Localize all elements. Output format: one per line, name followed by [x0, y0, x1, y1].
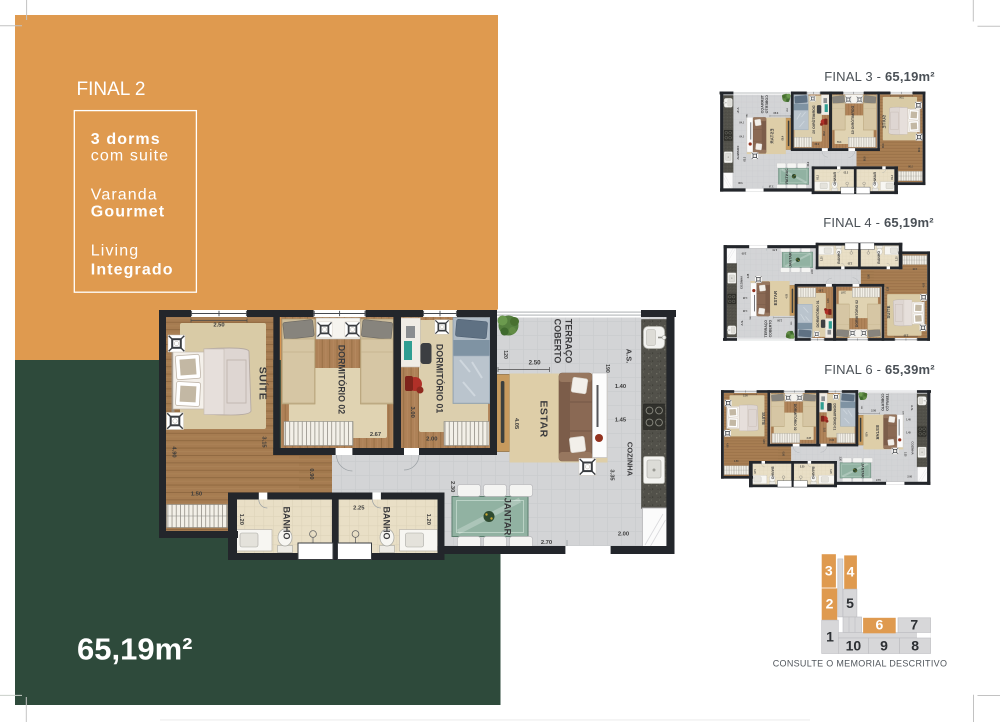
svg-text:Varanda: Varanda	[91, 187, 158, 204]
svg-text:9: 9	[880, 638, 888, 654]
svg-text:4: 4	[847, 564, 855, 580]
svg-text:3.15: 3.15	[261, 436, 267, 448]
svg-text:3 dorms: 3 dorms	[91, 131, 161, 148]
svg-text:3.35: 3.35	[609, 469, 615, 481]
svg-text:120: 120	[502, 350, 508, 359]
svg-text:3.00: 3.00	[409, 407, 415, 418]
svg-text:JANTAR: JANTAR	[502, 498, 513, 536]
svg-text:190: 190	[604, 364, 610, 373]
svg-text:1.20: 1.20	[425, 514, 431, 525]
svg-text:Living: Living	[91, 243, 139, 260]
svg-text:2.30: 2.30	[449, 481, 455, 492]
svg-text:0.90: 0.90	[308, 468, 314, 479]
svg-text:FINAL 3 - 65,19m²: FINAL 3 - 65,19m²	[824, 69, 935, 84]
svg-text:2.00: 2.00	[426, 437, 437, 443]
svg-text:Integrado: Integrado	[91, 262, 174, 279]
svg-text:1.45: 1.45	[615, 418, 627, 424]
svg-text:DORMITÓRIO 01: DORMITÓRIO 01	[434, 344, 445, 414]
svg-text:1: 1	[826, 629, 834, 645]
svg-text:1.40: 1.40	[615, 384, 626, 390]
svg-text:2: 2	[826, 596, 834, 612]
svg-text:8: 8	[911, 638, 919, 654]
svg-text:3: 3	[825, 563, 833, 579]
svg-text:A.S.: A.S.	[625, 349, 634, 364]
svg-text:10: 10	[846, 638, 862, 654]
svg-text:DORMITÓRIO 02: DORMITÓRIO 02	[336, 345, 347, 415]
svg-text:2.70: 2.70	[541, 540, 552, 546]
svg-text:5: 5	[846, 595, 854, 611]
svg-text:1.20: 1.20	[238, 514, 244, 525]
svg-text:2.50: 2.50	[529, 360, 542, 367]
svg-text:CONSULTE O MEMORIAL DESCRITIVO: CONSULTE O MEMORIAL DESCRITIVO	[773, 659, 948, 669]
svg-text:FINAL 4 - 65,19m²: FINAL 4 - 65,19m²	[823, 215, 934, 230]
svg-text:FINAL 6 - 65,39m²: FINAL 6 - 65,39m²	[824, 362, 935, 377]
svg-text:BANHO: BANHO	[282, 507, 292, 540]
svg-text:7: 7	[910, 617, 918, 633]
svg-text:ESTAR: ESTAR	[538, 400, 550, 437]
svg-text:TERRAÇO: TERRAÇO	[564, 319, 574, 364]
svg-text:2.00: 2.00	[618, 532, 629, 538]
svg-text:4.05: 4.05	[513, 418, 519, 430]
svg-text:2.25: 2.25	[353, 506, 365, 512]
svg-text:65,19m²: 65,19m²	[77, 632, 192, 667]
svg-text:Gourmet: Gourmet	[91, 203, 165, 220]
svg-text:2.67: 2.67	[370, 432, 381, 438]
svg-text:4.90: 4.90	[171, 446, 177, 457]
svg-text:FINAL 2: FINAL 2	[77, 79, 146, 100]
svg-text:1.50: 1.50	[191, 492, 202, 498]
svg-text:com suite: com suite	[91, 148, 169, 165]
svg-text:COZINHA: COZINHA	[626, 442, 635, 477]
svg-text:SUÍTE: SUÍTE	[257, 367, 270, 400]
svg-text:6: 6	[876, 617, 884, 633]
svg-text:2.50: 2.50	[213, 323, 224, 329]
svg-text:BANHO: BANHO	[382, 507, 392, 540]
svg-text:COBERTO: COBERTO	[553, 319, 563, 364]
